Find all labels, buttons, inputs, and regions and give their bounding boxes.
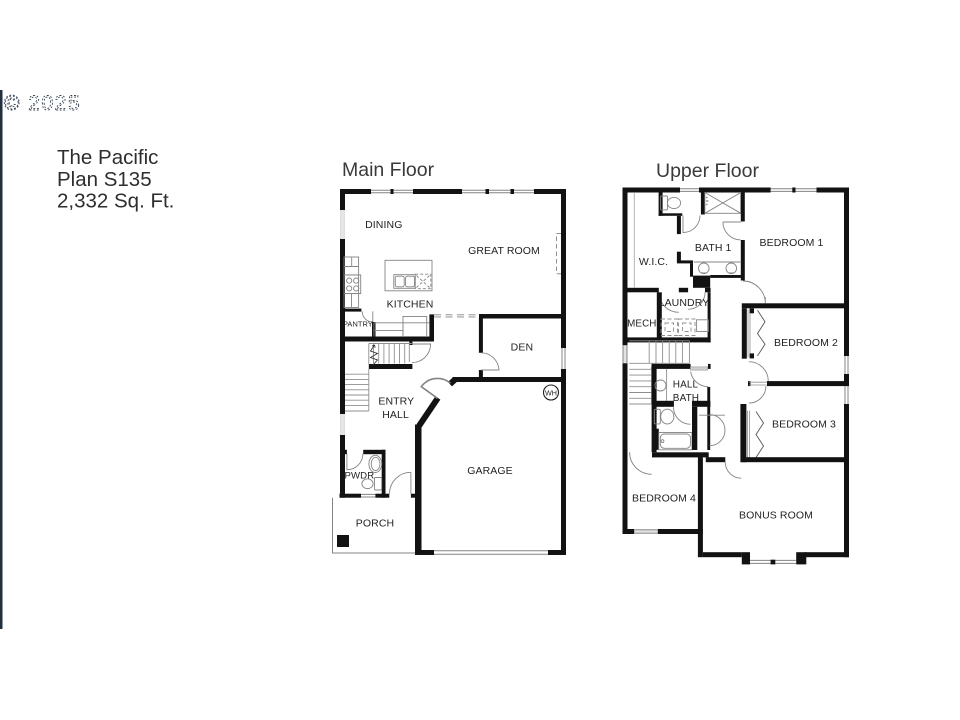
svg-text:BATH 1: BATH 1	[695, 242, 732, 254]
svg-text:Plan S135: Plan S135	[57, 168, 152, 191]
svg-text:MECH: MECH	[627, 319, 656, 330]
svg-text:HALL: HALL	[382, 409, 409, 421]
svg-text:HALL: HALL	[673, 380, 699, 391]
svg-text:PANTRY: PANTRY	[343, 320, 373, 329]
svg-text:WH: WH	[545, 388, 557, 397]
svg-text:BEDROOM 1: BEDROOM 1	[760, 237, 824, 249]
svg-text:Main Floor: Main Floor	[342, 159, 435, 181]
svg-text:DEN: DEN	[511, 341, 533, 353]
svg-text:The Pacific: The Pacific	[57, 146, 158, 169]
svg-text:LAUNDRY: LAUNDRY	[659, 297, 710, 309]
svg-text:© 2025: © 2025	[4, 92, 81, 115]
svg-text:BEDROOM 2: BEDROOM 2	[774, 337, 838, 349]
svg-text:BONUS ROOM: BONUS ROOM	[739, 509, 813, 521]
svg-text:W.I.C.: W.I.C.	[639, 256, 668, 268]
svg-text:BEDROOM 3: BEDROOM 3	[772, 419, 836, 431]
svg-text:GREAT ROOM: GREAT ROOM	[468, 245, 540, 257]
svg-text:BEDROOM 4: BEDROOM 4	[632, 493, 696, 505]
svg-text:2,332 Sq. Ft.: 2,332 Sq. Ft.	[57, 190, 174, 213]
svg-text:DINING: DINING	[365, 219, 402, 231]
svg-text:GARAGE: GARAGE	[467, 465, 513, 477]
svg-text:PORCH: PORCH	[356, 517, 394, 529]
svg-text:Upper Floor: Upper Floor	[656, 160, 759, 182]
svg-text:KITCHEN: KITCHEN	[387, 298, 434, 310]
svg-text:ENTRY: ENTRY	[378, 395, 414, 407]
svg-text:PWDR: PWDR	[345, 471, 375, 482]
svg-text:BATH: BATH	[673, 393, 699, 404]
